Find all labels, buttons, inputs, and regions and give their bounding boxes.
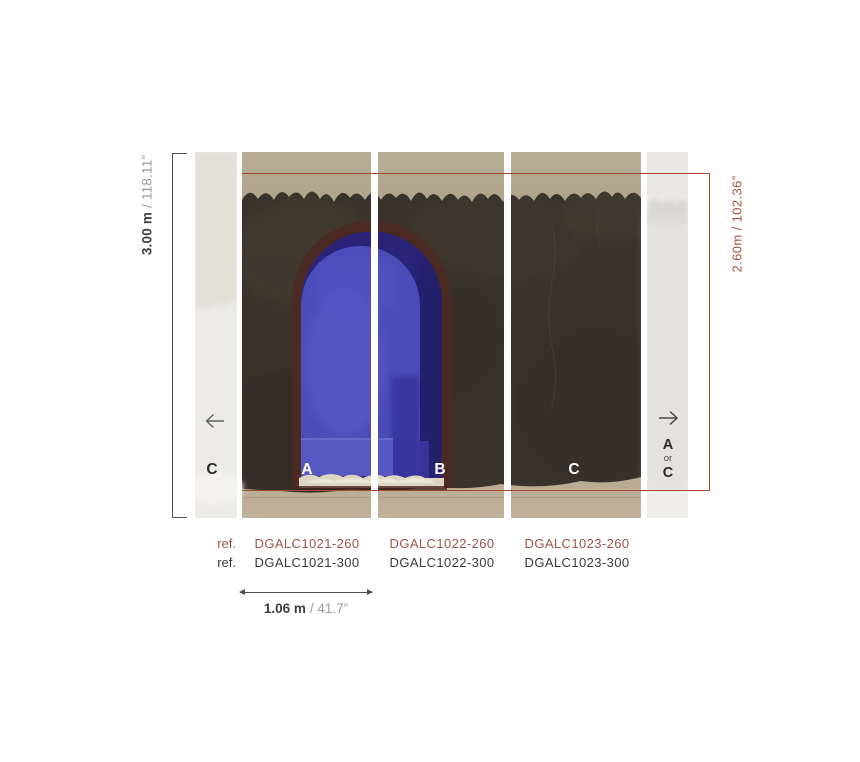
ref-code-1021-260: DGALC1021-260 [236,537,378,551]
panel-width-arrow [240,592,372,593]
ref-code-1021-300: DGALC1021-300 [236,556,378,570]
ref-code-1022-300: DGALC1022-300 [371,556,513,570]
ref-code-1022-260: DGALC1022-260 [371,537,513,551]
crop-height-bracket [242,173,710,491]
full-height-bracket [172,153,187,518]
panel-width-dimension: 1.06 m/ 41.7” [221,601,391,616]
panel-width-imperial: / 41.7” [310,601,348,616]
wallpaper-panel-diagram: A B C C A or C 3.00 m/ 118.11” 2.60m / 1… [0,0,860,762]
full-height-imperial: / 118.11” [140,155,155,208]
full-height-dimension: 3.00 m/ 118.11” [140,155,155,255]
ref-code-1023-300: DGALC1023-300 [506,556,648,570]
full-height-metric: 3.00 m [140,212,155,255]
panel-strip-left [195,152,243,518]
ref-code-1023-260: DGALC1023-260 [506,537,648,551]
ref-label-300: ref. [192,556,236,570]
left-strip-letter: C [206,461,217,478]
panel-width-metric: 1.06 m [264,601,306,616]
crop-height-dimension: 2.60m / 102.36” [730,175,745,272]
ref-label-260: ref. [192,537,236,551]
